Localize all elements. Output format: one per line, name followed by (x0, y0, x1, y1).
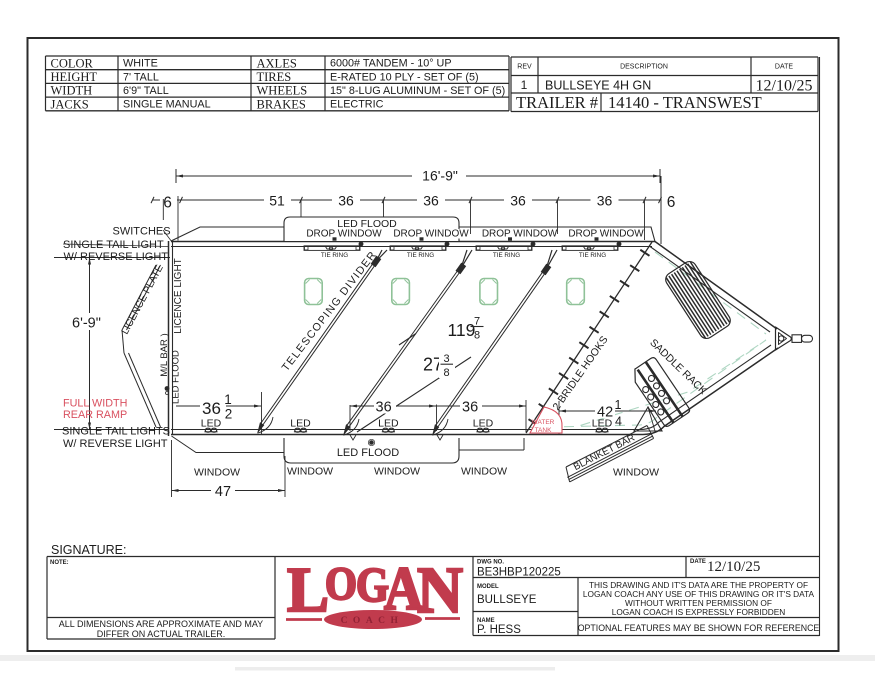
svg-text:LED: LED (473, 418, 494, 430)
svg-text:6'-9": 6'-9" (72, 316, 101, 332)
svg-text:DROP WINDOW: DROP WINDOW (568, 229, 644, 240)
svg-text:AXLES: AXLES (257, 56, 297, 70)
svg-text:LICENCE PLATE: LICENCE PLATE (120, 263, 166, 336)
svg-text:REAR RAMP: REAR RAMP (63, 409, 127, 421)
svg-text:LED: LED (290, 418, 311, 430)
svg-text:SINGLE TAIL LIGHTS: SINGLE TAIL LIGHTS (62, 426, 170, 438)
svg-text:14140 - TRANSWEST: 14140 - TRANSWEST (608, 93, 762, 112)
svg-text:WINDOW: WINDOW (461, 466, 507, 478)
svg-text:OPTIONAL FEATURES MAY BE SHOWN: OPTIONAL FEATURES MAY BE SHOWN FOR REFER… (578, 623, 820, 633)
svg-text:DESCRIPTION: DESCRIPTION (620, 64, 668, 71)
svg-text:TIE RING: TIE RING (579, 252, 606, 259)
svg-text:36: 36 (462, 400, 478, 416)
svg-text:2: 2 (225, 407, 233, 422)
svg-text:DATE: DATE (690, 559, 706, 565)
svg-text:6000# TANDEM - 10° UP: 6000# TANDEM - 10° UP (330, 58, 452, 70)
svg-text:WIDTH: WIDTH (51, 84, 93, 98)
svg-text:O: O (325, 558, 357, 610)
svg-text:TRAILER #: TRAILER # (516, 93, 598, 112)
svg-text:COACH: COACH (341, 616, 404, 626)
svg-text:1: 1 (224, 392, 232, 407)
svg-text:HEIGHT: HEIGHT (51, 70, 98, 84)
svg-text:WINDOW: WINDOW (287, 466, 333, 478)
svg-text:12/10/25: 12/10/25 (707, 559, 760, 575)
svg-text:DROP WINDOW: DROP WINDOW (306, 229, 382, 240)
svg-text:TIRES: TIRES (257, 70, 292, 84)
svg-text:36: 36 (376, 400, 392, 416)
svg-text:L: L (287, 554, 329, 625)
svg-text:WINDOW: WINDOW (613, 467, 659, 479)
svg-text:119: 119 (448, 320, 476, 340)
svg-text:1: 1 (521, 78, 528, 92)
svg-text:M/L BAR ): M/L BAR ) (159, 333, 170, 376)
svg-text:FULL WIDTH: FULL WIDTH (63, 398, 127, 410)
svg-text:36: 36 (423, 193, 439, 209)
svg-text:1: 1 (615, 398, 622, 412)
svg-text:LED: LED (592, 418, 613, 430)
svg-text:4: 4 (615, 415, 622, 429)
svg-text:51: 51 (269, 193, 285, 209)
svg-text:LED FLOOD: LED FLOOD (337, 447, 399, 459)
svg-text:47: 47 (215, 484, 231, 500)
svg-text:LICENCE LIGHT: LICENCE LIGHT (173, 258, 184, 334)
svg-text:7' TALL: 7' TALL (123, 71, 159, 83)
svg-text:8: 8 (443, 367, 449, 379)
svg-text:TELESCOPING DIVIDER: TELESCOPING DIVIDER (280, 249, 380, 374)
svg-text:12/10/25: 12/10/25 (756, 78, 813, 95)
svg-text:36: 36 (202, 399, 221, 418)
svg-text:3: 3 (443, 353, 449, 365)
svg-text:BULLSEYE: BULLSEYE (477, 594, 537, 606)
svg-text:E-RATED 10 PLY - SET OF (5): E-RATED 10 PLY - SET OF (5) (330, 71, 479, 83)
svg-text:WHITE: WHITE (123, 58, 158, 70)
svg-text:DROP WINDOW: DROP WINDOW (482, 229, 558, 240)
svg-text:JACKS: JACKS (51, 97, 89, 111)
svg-text:36: 36 (597, 193, 613, 209)
svg-text:15" 8-LUG ALUMINUM - SET OF (5: 15" 8-LUG ALUMINUM - SET OF (5) (330, 85, 505, 97)
svg-text:ALL DIMENSIONS ARE APPROXIMATE: ALL DIMENSIONS ARE APPROXIMATE AND MAY (59, 619, 263, 629)
svg-text:LED: LED (378, 418, 399, 430)
svg-text:DWG NO.: DWG NO. (477, 560, 504, 566)
svg-text:SINGLE MANUAL: SINGLE MANUAL (123, 99, 211, 111)
svg-text:COLOR: COLOR (51, 56, 94, 70)
svg-text:TIE RING: TIE RING (321, 252, 348, 259)
svg-text:BE3HBP120225: BE3HBP120225 (477, 567, 561, 579)
svg-text:8: 8 (474, 330, 480, 342)
svg-text:LED FLOOD: LED FLOOD (171, 350, 182, 404)
svg-text:7: 7 (474, 316, 480, 328)
svg-text:TANK: TANK (535, 427, 553, 434)
svg-text:W/ REVERSE LIGHT: W/ REVERSE LIGHT (64, 251, 169, 263)
svg-text:16'-9": 16'-9" (422, 168, 458, 184)
svg-text:NOTE:: NOTE: (50, 560, 69, 566)
svg-text:36: 36 (338, 193, 354, 209)
svg-text:DIFFER ON ACTUAL TRAILER.: DIFFER ON ACTUAL TRAILER. (97, 629, 226, 639)
svg-text:36: 36 (510, 193, 526, 209)
svg-text:BULLSEYE 4H GN: BULLSEYE 4H GN (545, 79, 651, 93)
svg-text:SWITCHES: SWITCHES (113, 226, 171, 238)
svg-text:LOGAN COACH IS EXPRESSLY FORBI: LOGAN COACH IS EXPRESSLY FORBIDDEN (612, 607, 786, 617)
svg-text:ELECTRIC: ELECTRIC (330, 99, 384, 111)
svg-text:N: N (417, 554, 463, 627)
svg-text:SIGNATURE:: SIGNATURE: (51, 543, 126, 557)
svg-text:6: 6 (163, 195, 172, 212)
svg-text:TIE RING: TIE RING (493, 252, 520, 259)
svg-text:BRAKES: BRAKES (257, 97, 306, 111)
svg-text:WINDOW: WINDOW (194, 467, 240, 479)
svg-text:DROP WINDOW: DROP WINDOW (393, 229, 469, 240)
svg-text:REV: REV (517, 64, 532, 71)
svg-text:6'9" TALL: 6'9" TALL (123, 85, 169, 97)
svg-text:WINDOW: WINDOW (374, 466, 420, 478)
svg-text:WATER: WATER (532, 419, 555, 426)
svg-text:WHEELS: WHEELS (257, 84, 308, 98)
svg-text:6: 6 (667, 194, 676, 211)
svg-text:MODEL: MODEL (477, 584, 499, 590)
svg-text:DATE: DATE (775, 64, 793, 71)
svg-text:LED: LED (201, 418, 222, 430)
svg-text:P. HESS: P. HESS (477, 624, 521, 636)
svg-text:W/ REVERSE LIGHT: W/ REVERSE LIGHT (63, 438, 168, 450)
svg-text:TIE RING: TIE RING (407, 252, 434, 259)
